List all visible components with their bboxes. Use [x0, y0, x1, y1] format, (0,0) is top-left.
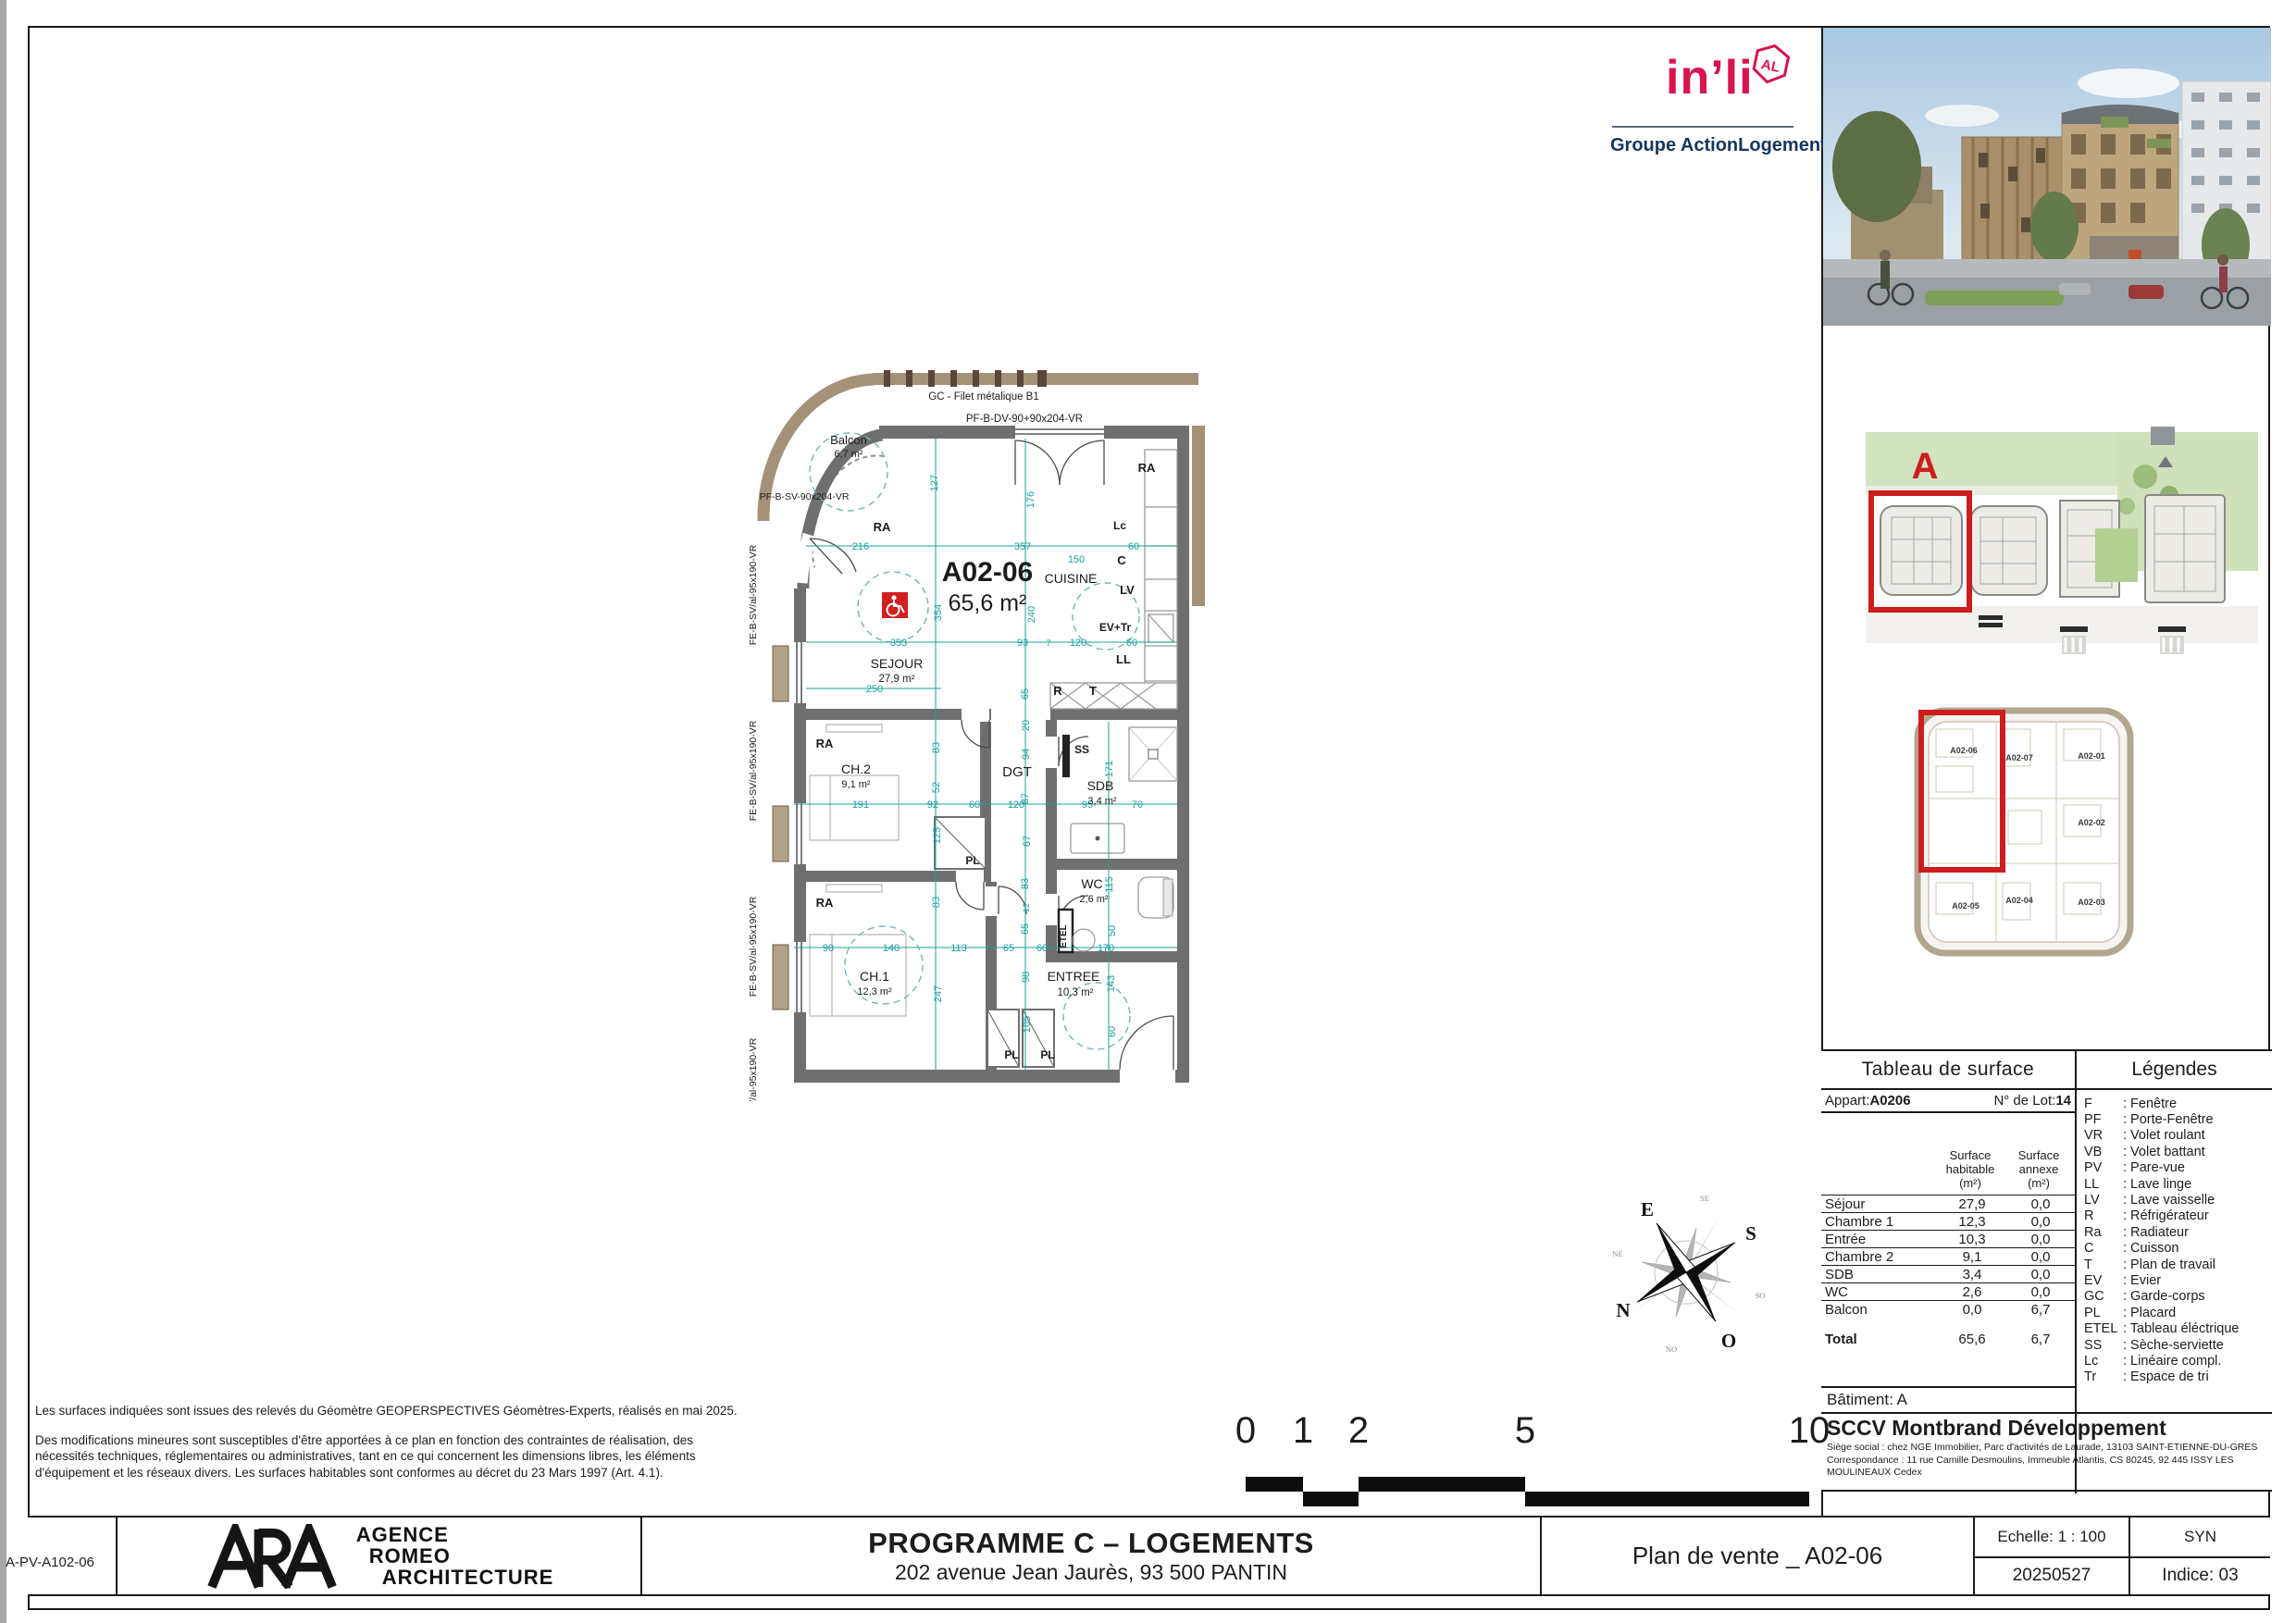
compass-NE: NE	[1612, 1249, 1622, 1258]
room-cuisine: CUISINE	[1045, 571, 1098, 586]
scale-segment-2	[1359, 1477, 1525, 1492]
dimension-label: 250	[866, 684, 883, 695]
dimension-label: 93	[1017, 638, 1028, 649]
legend-code: ETEL	[2084, 1321, 2123, 1336]
placard-label: PL	[965, 854, 979, 867]
syn-label: SYN	[2130, 1518, 2270, 1556]
legend-name: : Volet battant	[2123, 1145, 2272, 1159]
room-label: Chambre 2	[1821, 1249, 1938, 1265]
room-annexe: 0,0	[2006, 1267, 2075, 1282]
dimension-label: 115	[1104, 876, 1115, 893]
key-plan-unit-A02-04: A02-04	[2005, 896, 2033, 905]
inli-al-badge-icon: AL	[1749, 43, 1792, 91]
fe-window-label: FE-B-SV/al-95x190-VR	[748, 1037, 759, 1101]
dimension-label: 171	[1104, 761, 1115, 777]
fe-window-label: FE-B-SV/al-95x190-VR	[748, 720, 759, 821]
drawing-title-cell: Plan de vente _ A02-06	[1542, 1518, 1975, 1594]
plan-labels: Balcon6,7 m²GC - Filet métalique B1PF-B-…	[748, 391, 1156, 1101]
scale-number-1: 1	[1293, 1410, 1313, 1452]
legend-name: : Espace de tri	[2123, 1369, 2272, 1384]
room-sejour: SEJOUR	[871, 656, 924, 671]
note-paragraph-1: Les surfaces indiquées sont issues des r…	[35, 1403, 752, 1419]
legend-code: LL	[2084, 1177, 2123, 1192]
legend-code: Tr	[2084, 1369, 2123, 1384]
room-label: Entrée	[1821, 1232, 1938, 1247]
surface-total-row: Total 65,6 6,7	[1821, 1327, 2075, 1351]
legend-name: : Lave linge	[2123, 1177, 2272, 1192]
legend-name: : Porte-Fenêtre	[2123, 1112, 2272, 1127]
legend-name: : Sèche-serviette	[2123, 1338, 2272, 1353]
key-plan-unit-A02-03: A02-03	[2078, 898, 2105, 907]
room-ch1: CH.1	[860, 969, 889, 984]
equip-r: R	[1053, 684, 1062, 698]
room-annexe: 6,7	[2006, 1302, 2075, 1318]
scale-number-5: 5	[1515, 1410, 1535, 1452]
scale-number-0: 0	[1235, 1410, 1256, 1452]
fe-window-label: FE-B-SV/al-95x190-VR	[748, 896, 759, 997]
legend-item-SS: SS: Sèche-serviette	[2084, 1337, 2272, 1353]
agency-name: AGENCE ROMEO ARCHITECTURE	[356, 1524, 554, 1588]
room-annexe: 0,0	[2006, 1214, 2075, 1230]
equip-etel: ETEL	[1059, 924, 1069, 948]
gc-filet-label: GC - Filet métalique B1	[928, 391, 1039, 403]
surface-row-Séjour: Séjour27,90,0	[1821, 1195, 2075, 1212]
pf-sv-label: PF-B-SV-90x204-VR	[760, 491, 850, 502]
inli-logo: in’li AL Groupe ActionLogement	[1608, 48, 1810, 161]
key-plan-unit-A02-07: A02-07	[2005, 753, 2033, 762]
legend-item-VB: VB: Volet battant	[2084, 1144, 2272, 1159]
fe-window-label: FE-B-SV/al-95x190-VR	[748, 544, 759, 645]
date-label: 20250527	[1975, 1556, 2128, 1595]
agency-line-3: ARCHITECTURE	[356, 1567, 554, 1588]
developer-address-1: Siège social : chez NGE Immobilier, Parc…	[1827, 1442, 2266, 1454]
compass-SE: SE	[1700, 1194, 1709, 1203]
bathroom-fixtures	[1059, 727, 1177, 952]
lot-label: N° de Lot:	[1993, 1093, 2055, 1109]
legend-item-LV: LV: Lave vaisselle	[2084, 1192, 2272, 1208]
room-ch1-area: 12,3 m²	[857, 986, 892, 997]
pf-dv-label: PF-B-DV-90+90x204-VR	[966, 414, 1083, 425]
scale-number-10: 10	[1789, 1410, 1831, 1452]
surface-row-Chambre 2: Chambre 29,10,0	[1821, 1247, 2075, 1265]
legend-item-LL: LL: Lave linge	[2084, 1176, 2272, 1192]
surface-table-title: Tableau de surface	[1821, 1051, 2075, 1090]
equip-evtr: EV+Tr	[1099, 621, 1132, 634]
equip-lv: LV	[1120, 583, 1135, 597]
document-code: A-PV-A102-06	[6, 1555, 107, 1570]
col-header-habitable: Surfacehabitable(m²)	[1936, 1149, 2004, 1191]
wheelchair-icon	[882, 592, 908, 618]
legend-item-C: C: Cuisson	[2084, 1241, 2272, 1257]
legend-name: : Plan de travail	[2123, 1258, 2272, 1272]
dimension-label: 20	[1021, 720, 1032, 731]
agency-line-1: AGENCE	[356, 1524, 554, 1545]
room-ch2-area: 9,1 m²	[841, 779, 871, 790]
dimension-label: 170	[1098, 943, 1114, 954]
radiator-label: RA	[874, 520, 891, 534]
room-label: Chambre 1	[1821, 1214, 1938, 1230]
surface-table-column-headers: Surfacehabitable(m²) Surfaceannexe(m²)	[1821, 1113, 2075, 1195]
room-wc-area: 2,6 m²	[1079, 894, 1109, 905]
dimension-label: 60	[1128, 541, 1139, 552]
site-plan-building-label: A	[1912, 446, 1939, 487]
legend-item-PV: PV: Pare-vue	[2084, 1160, 2272, 1176]
dimension-label: 113	[950, 943, 967, 954]
index-label: Indice: 03	[2130, 1556, 2270, 1595]
dimension-label: 60	[969, 799, 980, 811]
radiator-label: RA	[1138, 461, 1156, 475]
unit-area: 65,6 m²	[949, 590, 1027, 616]
dimension-label: 83	[1020, 878, 1031, 889]
scale-date-cell: Echelle: 1 : 100 20250527	[1975, 1518, 2130, 1594]
key-plan-unit-A02-05: A02-05	[1952, 901, 1980, 911]
dimension-label: 150	[1068, 554, 1085, 565]
legend-item-Ra: Ra: Radiateur	[2084, 1224, 2272, 1240]
equip-lc: Lc	[1113, 519, 1126, 532]
scale-bar: 012510	[1231, 1410, 1842, 1508]
dimension-label: 92	[927, 799, 938, 811]
apartment-row: Appart:A0206 N° de Lot:14	[1821, 1090, 2075, 1113]
total-annexe: 6,7	[2006, 1332, 2075, 1347]
unit-id: A02-06	[942, 557, 1033, 588]
dimension-label: 65	[1020, 923, 1031, 935]
dimension-label: 83	[931, 742, 942, 753]
survey-notes: Les surfaces indiquées sont issues des r…	[35, 1403, 752, 1493]
dimension-label: 83	[931, 897, 942, 908]
dimension-label: 94	[1021, 749, 1032, 760]
svg-text:AL: AL	[1760, 56, 1781, 76]
legend-code: F	[2084, 1096, 2123, 1111]
title-block-strip: AGENCE ROMEO ARCHITECTURE PROGRAMME C – …	[28, 1516, 2270, 1596]
legend-item-Lc: Lc: Linéaire compl.	[2084, 1353, 2272, 1369]
legend-name: : Pare-vue	[2123, 1160, 2272, 1175]
legend-item-PL: PL: Placard	[2084, 1305, 2272, 1320]
room-label: SDB	[1821, 1267, 1938, 1282]
dimension-label: 60	[1036, 943, 1048, 954]
dimension-label: 176	[1025, 491, 1036, 508]
placard-label: PL	[1004, 1048, 1018, 1061]
surface-row-Entrée: Entrée10,30,0	[1821, 1230, 2075, 1247]
key-plan-unit-A02-02: A02-02	[2078, 818, 2105, 827]
scale-label: Echelle: 1 : 100	[1975, 1518, 2128, 1556]
room-entree: ENTREE	[1048, 969, 1100, 984]
room-habitable: 2,6	[1938, 1284, 2006, 1300]
legend-code: Ra	[2084, 1225, 2123, 1240]
legend-code: LV	[2084, 1193, 2123, 1208]
agency-line-2: ROMEO	[356, 1545, 554, 1567]
placard-label: PL	[1040, 1048, 1054, 1061]
floor-plan: 2163571506012717635393712060354240250191…	[745, 368, 1208, 1101]
total-habitable: 65,6	[1938, 1332, 2006, 1347]
note-paragraph-2: Des modifications mineures sont suscepti…	[35, 1432, 752, 1481]
surface-row-WC: WC2,60,0	[1821, 1282, 2075, 1300]
legend-name: : Tableau éléctrique	[2123, 1321, 2272, 1336]
compass-NO: NO	[1666, 1344, 1677, 1354]
room-ch2: CH.2	[841, 762, 871, 776]
room-habitable: 27,9	[1938, 1196, 2006, 1212]
legend-name: : Cuisson	[2123, 1241, 2272, 1256]
apart-label: Appart:	[1825, 1093, 1869, 1109]
dimension-label: 143	[1106, 975, 1117, 992]
equip-t: T	[1089, 684, 1097, 698]
legend-item-ETEL: ETEL: Tableau éléctrique	[2084, 1320, 2272, 1336]
room-annexe: 0,0	[2006, 1196, 2075, 1212]
legend-item-GC: GC: Garde-corps	[2084, 1289, 2272, 1305]
lot-value: 14	[2055, 1093, 2071, 1109]
room-habitable: 9,1	[1938, 1249, 2006, 1265]
site-plan: A	[1840, 421, 2265, 669]
syn-index-cell: SYN Indice: 03	[2130, 1518, 2270, 1594]
legend-items: F: FenêtrePF: Porte-FenêtreVR: Volet rou…	[2077, 1090, 2272, 1385]
legend-code: C	[2084, 1241, 2123, 1256]
developer-address-2: Correspondance : 11 rue Camille Desmouli…	[1827, 1455, 2266, 1479]
legend-code: R	[2084, 1208, 2123, 1223]
legend-item-F: F: Fenêtre	[2084, 1096, 2272, 1111]
compass-E: E	[1641, 1198, 1654, 1220]
dimension-label: 216	[852, 541, 869, 552]
room-habitable: 3,4	[1938, 1267, 2006, 1282]
room-habitable: 12,3	[1938, 1214, 2006, 1230]
dimension-label: 90	[823, 943, 834, 954]
building-render-photo	[1823, 28, 2271, 326]
legend-code: PL	[2084, 1306, 2123, 1320]
dimension-label: 60	[1107, 1026, 1118, 1037]
viewer-edge	[0, 0, 6, 1623]
surface-row-Balcon: Balcon0,06,7	[1821, 1300, 2075, 1318]
dimension-label: 7	[1046, 638, 1050, 648]
legend-code: PF	[2084, 1112, 2123, 1127]
batiment-row: Bâtiment: A	[1821, 1386, 2077, 1412]
dimension-label: 140	[883, 943, 900, 954]
dimension-label: 354	[933, 604, 944, 621]
dimension-label: 87	[1020, 793, 1031, 804]
dimension-label: 191	[852, 799, 869, 811]
ara-logo-icon	[205, 1524, 343, 1589]
room-label: WC	[1821, 1284, 1938, 1300]
legend-name: : Radiateur	[2123, 1225, 2272, 1240]
project-title: PROGRAMME C – LOGEMENTS	[868, 1527, 1314, 1560]
compass-S: S	[1745, 1222, 1756, 1245]
dimension-label: 60	[1126, 638, 1137, 649]
legend-item-R: R: Réfrigérateur	[2084, 1208, 2272, 1224]
project-address: 202 avenue Jean Jaurès, 93 500 PANTIN	[895, 1560, 1287, 1585]
legend-code: EV	[2084, 1273, 2123, 1288]
dimension-label: 65	[1003, 943, 1014, 954]
balcony-area: 6,7 m²	[834, 449, 863, 460]
dimension-label: 70	[1132, 799, 1143, 811]
project-title-cell: PROGRAMME C – LOGEMENTS 202 avenue Jean …	[642, 1518, 1542, 1594]
legend-item-PF: PF: Porte-Fenêtre	[2084, 1111, 2272, 1127]
developer-block: SCCV Montbrand Développement Siège socia…	[1821, 1412, 2272, 1493]
legend-name: : Placard	[2123, 1306, 2272, 1320]
room-habitable: 10,3	[1938, 1232, 2006, 1247]
room-annexe: 0,0	[2006, 1249, 2075, 1265]
legend-name: : Evier	[2123, 1273, 2272, 1288]
room-wc: WC	[1081, 876, 1102, 891]
legend-code: VR	[2084, 1128, 2123, 1143]
dimension-label: 12	[1022, 903, 1031, 912]
scale-segment-0	[1246, 1477, 1303, 1492]
scale-number-2: 2	[1348, 1410, 1369, 1452]
inli-underline	[1612, 126, 1793, 128]
exterior-shutters	[773, 646, 788, 1010]
surface-and-legend-panel: Tableau de surface Appart:A0206 N° de Lo…	[1821, 1049, 2272, 1492]
legend-code: Lc	[2084, 1354, 2123, 1369]
dimension-label: 247	[933, 985, 944, 1002]
surface-row-Chambre 1: Chambre 112,30,0	[1821, 1212, 2075, 1230]
dimension-label: 67	[1022, 836, 1033, 847]
room-sdb: SDB	[1087, 778, 1114, 793]
radiator-label: RA	[816, 737, 834, 750]
dimension-label: 353	[890, 638, 907, 649]
legend-name: : Volet roulant	[2123, 1128, 2272, 1143]
dimension-label: 50	[1107, 925, 1118, 936]
legend-name: : Linéaire compl.	[2123, 1354, 2272, 1369]
legend-code: PV	[2084, 1160, 2123, 1175]
surface-row-SDB: SDB3,40,0	[1821, 1265, 2075, 1282]
legend-item-T: T: Plan de travail	[2084, 1257, 2272, 1272]
room-label: Séjour	[1821, 1196, 1938, 1212]
radiator-label: RA	[816, 896, 834, 910]
legend-item-VR: VR: Volet roulant	[2084, 1128, 2272, 1144]
legend-code: VB	[2084, 1145, 2123, 1159]
compass-O: O	[1721, 1330, 1736, 1352]
dimension-label: 240	[1026, 606, 1037, 623]
dimension-label: 98	[1021, 972, 1032, 983]
legend-code: GC	[2084, 1289, 2123, 1304]
compass-N: N	[1616, 1299, 1630, 1321]
legend-name: : Lave vaisselle	[2123, 1193, 2272, 1208]
room-sdb-area: 3,4 m²	[1087, 796, 1117, 807]
dimension-label: 105	[1022, 1016, 1033, 1033]
dimension-label: 52	[931, 782, 942, 793]
legend-code: T	[2084, 1258, 2123, 1272]
scale-segment-1	[1303, 1492, 1359, 1506]
apart-value: A0206	[1869, 1093, 1910, 1109]
room-label: Balcon	[1821, 1302, 1938, 1318]
dimension-label: 127	[929, 475, 940, 491]
legend-name: : Garde-corps	[2123, 1289, 2272, 1304]
inli-group-label: Groupe ActionLogement	[1610, 135, 1827, 156]
dimension-label: 125	[932, 827, 943, 844]
inli-wordmark: in’li	[1666, 50, 1754, 105]
surface-table-rows: Séjour27,90,0Chambre 112,30,0Entrée10,30…	[1821, 1195, 2075, 1318]
legend-code: SS	[2084, 1338, 2123, 1353]
legend-name: : Fenêtre	[2123, 1096, 2272, 1111]
room-sejour-area: 27,9 m²	[879, 674, 915, 685]
key-plan-unit-A02-01: A02-01	[2078, 751, 2105, 761]
legend-name: : Réfrigérateur	[2123, 1208, 2272, 1223]
dimension-label: 120	[1070, 638, 1086, 649]
equip-ll: LL	[1116, 652, 1131, 666]
legend-item-EV: EV: Evier	[2084, 1272, 2272, 1288]
legend-title: Légendes	[2077, 1051, 2272, 1090]
developer-name: SCCV Montbrand Développement	[1827, 1416, 2266, 1441]
room-dgt: DGT	[1002, 764, 1032, 780]
total-label: Total	[1821, 1332, 1938, 1347]
col-header-annexe: Surfaceannexe(m²)	[2004, 1149, 2073, 1191]
equip-ss: SS	[1074, 743, 1089, 756]
dimension-label: 357	[1014, 541, 1031, 552]
key-plan: A02-06A02-07A02-01A02-02A02-05A02-04A02-…	[1908, 701, 2141, 972]
room-habitable: 0,0	[1938, 1302, 2006, 1318]
key-plan-unit-A02-06: A02-06	[1950, 746, 1978, 755]
legend-item-Tr: Tr: Espace de tri	[2084, 1369, 2272, 1385]
compass-SO: SO	[1756, 1291, 1766, 1300]
architect-logo-cell: AGENCE ROMEO ARCHITECTURE	[118, 1518, 642, 1594]
room-annexe: 0,0	[2006, 1232, 2075, 1247]
scale-segment-3	[1525, 1492, 1809, 1506]
equip-c: C	[1117, 553, 1126, 567]
dimension-label: 65	[1020, 688, 1031, 700]
balcony-name: Balcon	[830, 433, 867, 447]
compass-rose-icon: NSEONESESONO	[1612, 1164, 1818, 1386]
room-entree-area: 10,3 m²	[1058, 987, 1094, 998]
room-annexe: 0,0	[2006, 1284, 2075, 1300]
